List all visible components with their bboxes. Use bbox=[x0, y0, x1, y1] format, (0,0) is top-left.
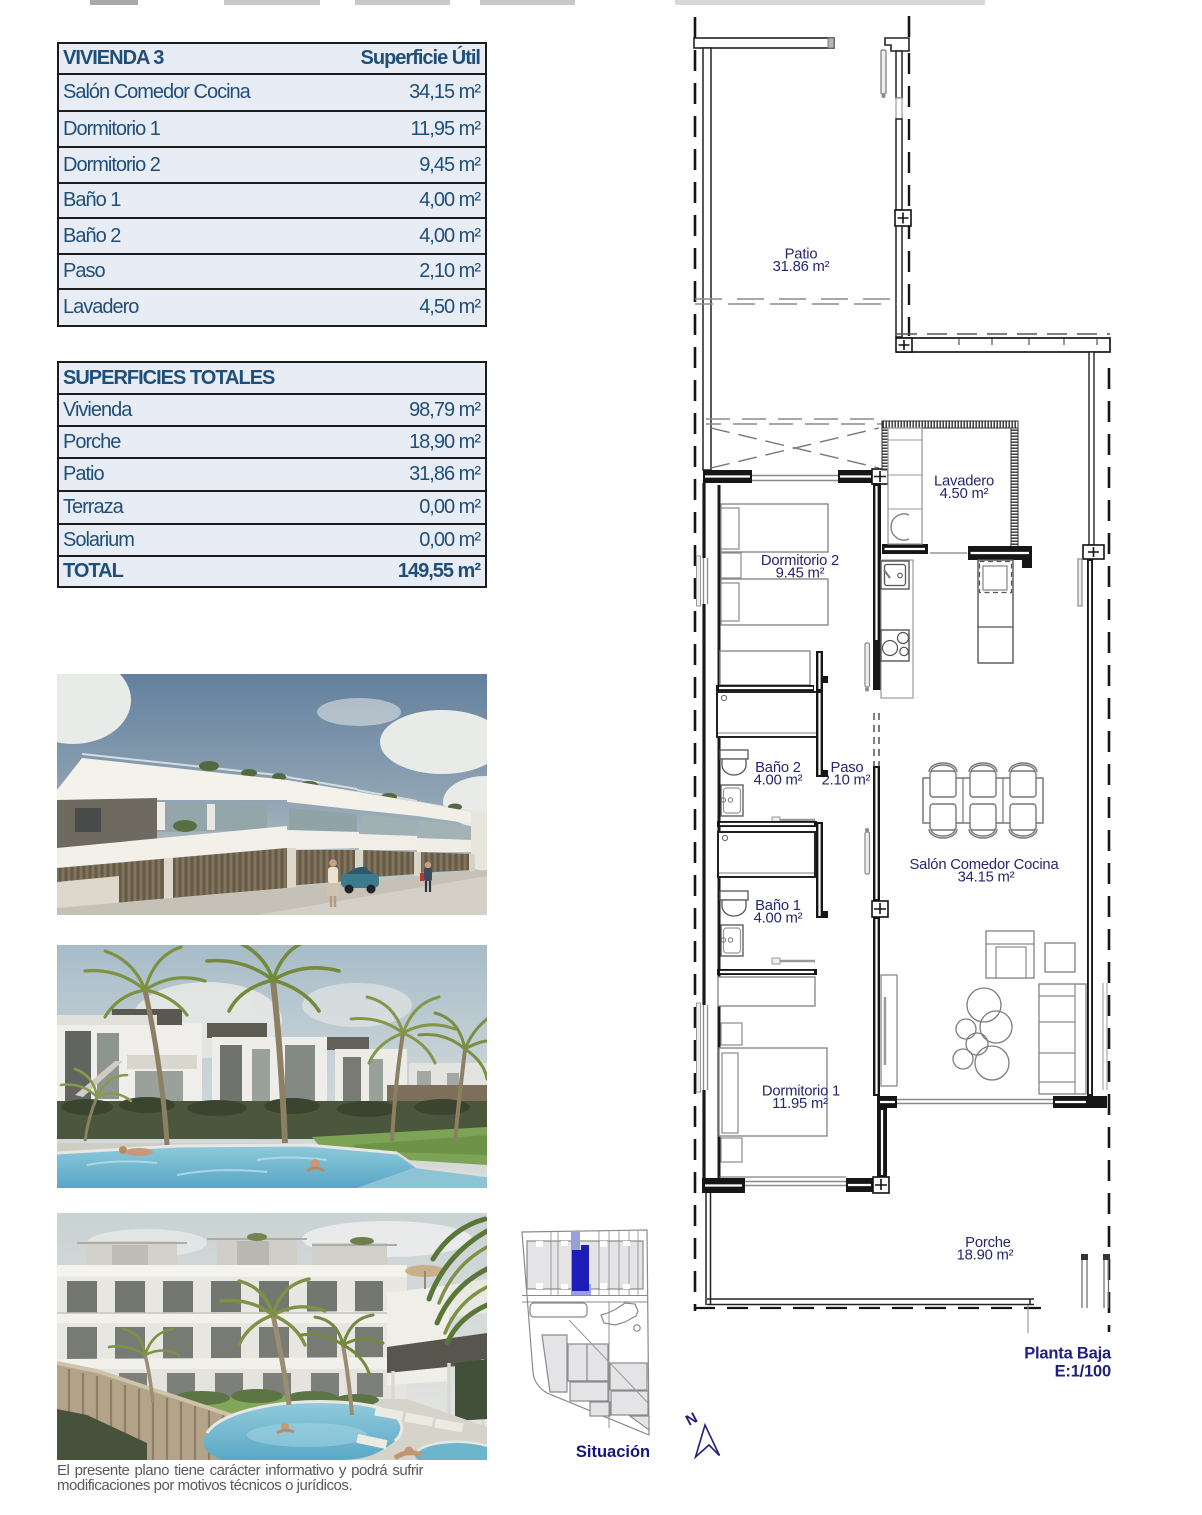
svg-text:N: N bbox=[683, 1409, 701, 1429]
svg-text:4.50 m²: 4.50 m² bbox=[940, 486, 989, 502]
svg-text:E:1/100: E:1/100 bbox=[1055, 1363, 1111, 1381]
svg-text:4.00 m²: 4.00 m² bbox=[754, 773, 803, 789]
svg-text:4.00 m²: 4.00 m² bbox=[754, 911, 803, 927]
svg-text:34.15 m²: 34.15 m² bbox=[958, 870, 1015, 886]
svg-text:11.95 m²: 11.95 m² bbox=[772, 1096, 828, 1112]
svg-text:18.90 m²: 18.90 m² bbox=[957, 1248, 1014, 1264]
svg-text:2.10 m²: 2.10 m² bbox=[822, 773, 871, 789]
svg-text:Situación: Situación bbox=[576, 1443, 650, 1461]
svg-text:9.45 m²: 9.45 m² bbox=[776, 566, 825, 582]
svg-text:31.86 m²: 31.86 m² bbox=[773, 259, 830, 275]
svg-text:Planta Baja: Planta Baja bbox=[1024, 1345, 1112, 1363]
